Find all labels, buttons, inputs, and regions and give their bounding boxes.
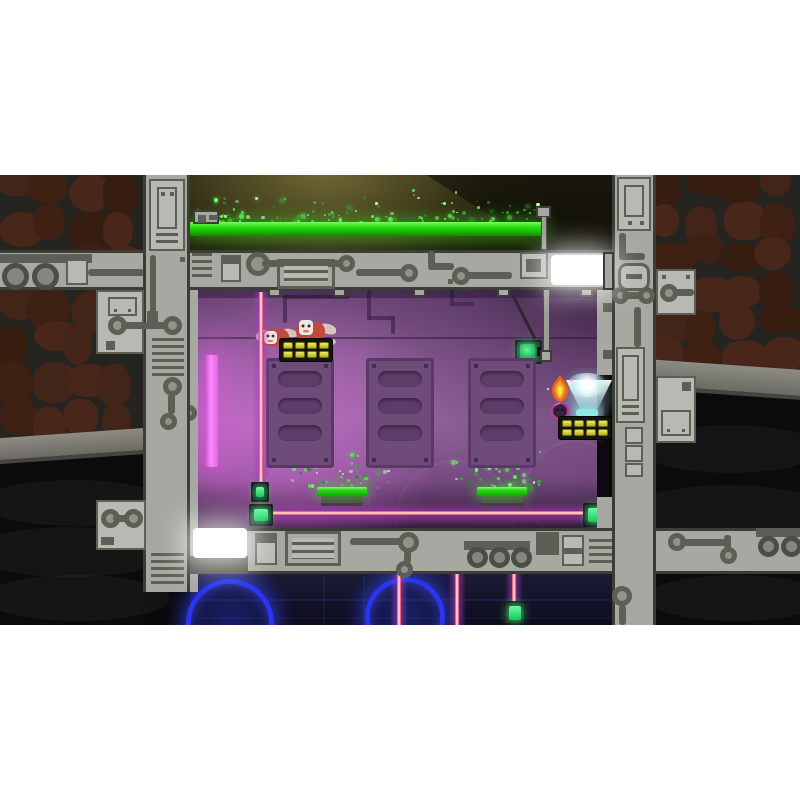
machine-detail-circ: [160, 413, 177, 430]
machine-detail-box: [625, 445, 643, 462]
letterbox-bottom: [0, 625, 800, 800]
machine-detail-dot: [628, 221, 632, 225]
machine-detail-dot: [180, 257, 185, 262]
machine-detail-dbox: [147, 311, 158, 322]
machine-detail-box: [624, 185, 644, 217]
machine-detail-pipeh: [619, 253, 645, 260]
machine-detail-circ: [163, 316, 182, 335]
machine-detail-pipeh: [121, 322, 169, 329]
machine-detail-box: [622, 355, 639, 401]
machine-detail-circ: [612, 586, 632, 606]
machine-detail-pipev: [619, 605, 626, 625]
machine-detail-box: [625, 427, 643, 444]
machine-detail-win: [661, 410, 691, 436]
machine-detail-box: [157, 187, 177, 229]
machine-detail-vent: [151, 553, 184, 586]
machine-detail-pipev: [150, 255, 156, 313]
letterbox-top: [0, 0, 800, 175]
machine-detail-dot: [170, 192, 174, 196]
game-viewport[interactable]: [0, 175, 800, 625]
machine-detail-vent: [152, 338, 184, 376]
white-lamp-bottom: [193, 528, 247, 558]
machine-detail-dot: [686, 275, 690, 279]
machine-detail-dash: [626, 274, 642, 279]
screenshot-canvas: [0, 0, 800, 800]
white-lamp-top: [551, 255, 606, 285]
lamp-end-cap: [603, 252, 614, 290]
machine-detail-dot: [161, 192, 165, 196]
machine-detail-vent: [156, 233, 178, 246]
machine-detail-circ: [124, 509, 143, 528]
machine-detail-dot: [662, 275, 666, 279]
machine-detail-pipev: [168, 394, 175, 414]
machine-detail-dbox: [101, 537, 114, 545]
detail-dot: [682, 429, 685, 432]
machine-detail-dbox: [682, 382, 691, 391]
machine-detail-pipev: [634, 307, 641, 347]
detail-dot: [128, 309, 131, 312]
machine-detail-pipeh: [674, 289, 694, 296]
detail-dot: [667, 429, 670, 432]
machine-detail-dot: [640, 221, 644, 225]
machine-detail-win: [108, 297, 137, 316]
machine-detail-box: [625, 463, 643, 477]
detail-dot: [114, 309, 117, 312]
machine-detail-circ: [638, 287, 655, 304]
machine-detail-vent: [622, 405, 639, 418]
machine-detail-dbox: [106, 341, 115, 350]
